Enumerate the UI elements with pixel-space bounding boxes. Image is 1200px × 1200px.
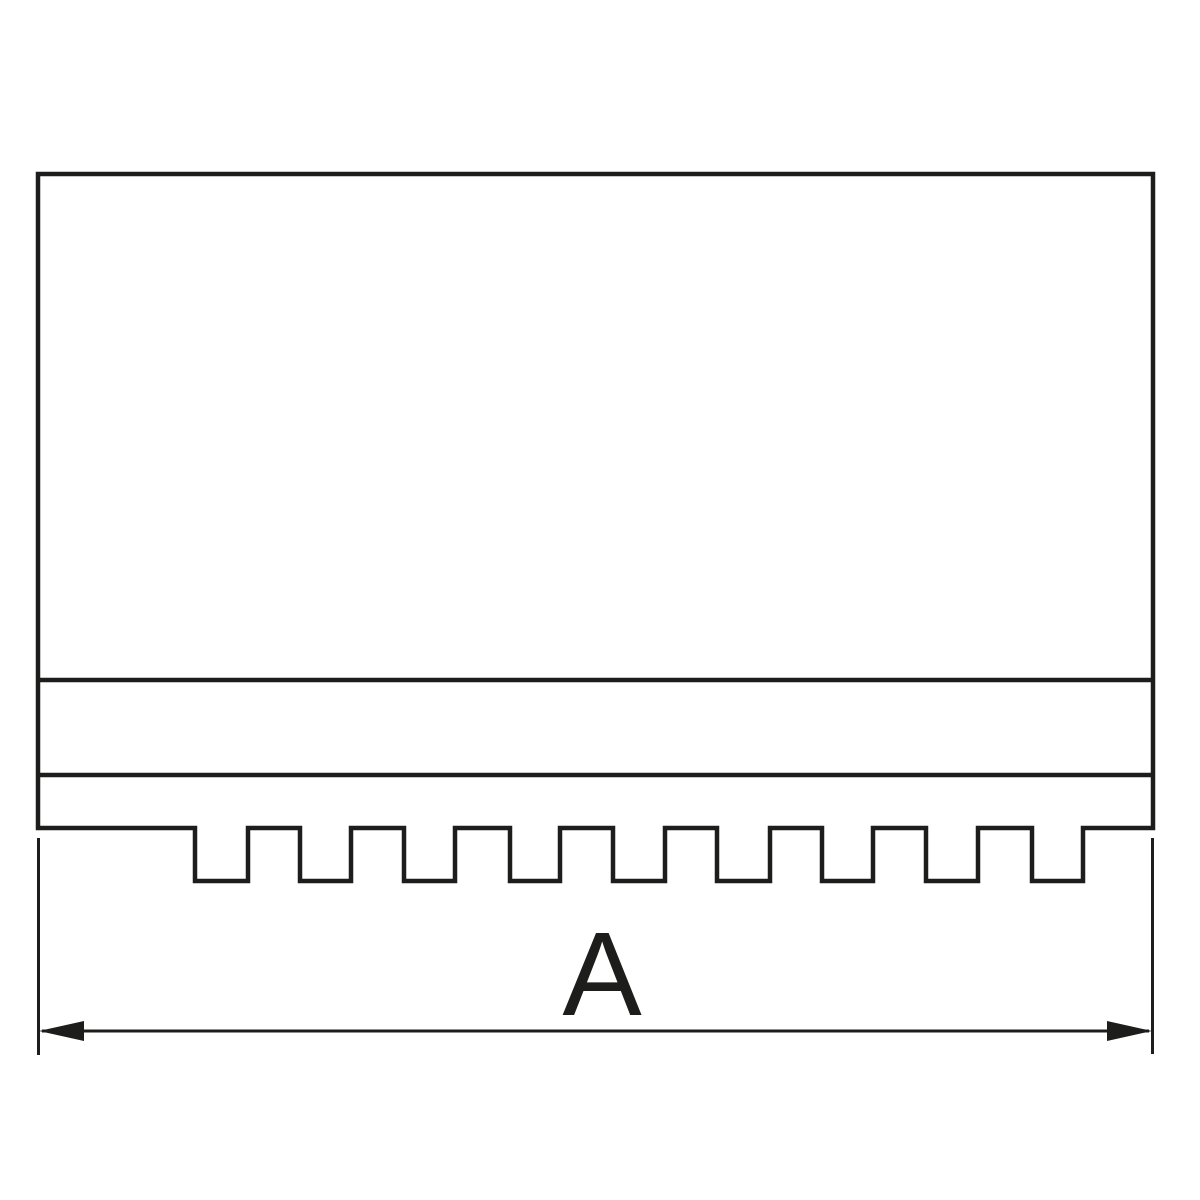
technical-drawing: A [0,0,1200,1200]
drawing-canvas: A [0,0,1200,1200]
dimension-label: A [562,908,642,1041]
dimension-arrowhead-left [39,1021,84,1041]
dimension-arrowhead-right [1107,1021,1152,1041]
